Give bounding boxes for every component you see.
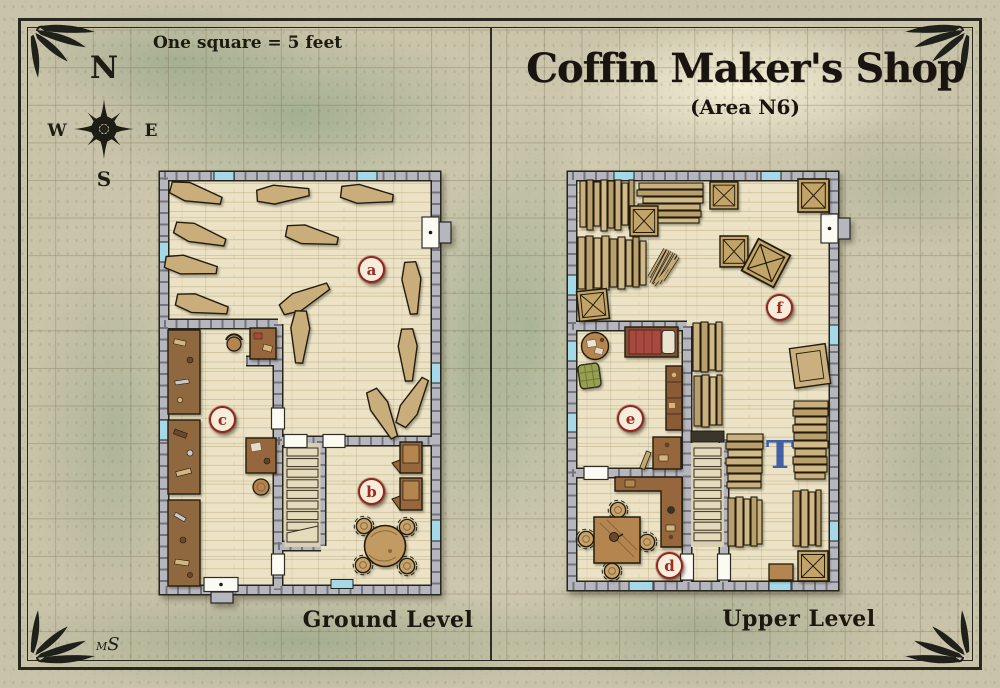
room-label-d: d (656, 552, 683, 579)
shelf-cabinet-icon (666, 366, 682, 430)
door (272, 554, 285, 575)
corner-flourish-icon (22, 594, 108, 666)
ground-level-caption: Ground Level (273, 607, 503, 633)
door (323, 435, 345, 448)
door-nub (211, 592, 233, 603)
door (718, 554, 731, 580)
compass-south-label: S (97, 167, 111, 191)
window (357, 172, 377, 181)
title-block: Coffin Maker's Shop (Area N6) (505, 48, 985, 119)
window (331, 580, 353, 589)
door (584, 467, 608, 480)
paper-icon (250, 442, 261, 452)
crate-icon (798, 551, 828, 581)
door-handle (429, 231, 433, 235)
artist-signature: MS (96, 634, 120, 655)
flat-crate-icon (789, 344, 830, 389)
page-subtitle: (Area N6) (505, 95, 985, 119)
door-handle (219, 583, 223, 587)
door-nub (439, 222, 451, 243)
bed-icon (625, 327, 678, 357)
window (830, 325, 839, 345)
workbench-icon (168, 420, 200, 494)
stairs-icon (285, 443, 321, 547)
door-nub (838, 218, 850, 239)
square-table-icon (594, 517, 640, 563)
upper-level-caption: Upper Level (684, 606, 914, 632)
window (614, 172, 634, 181)
room-label-b: b (358, 478, 385, 505)
crate-icon (720, 236, 748, 267)
plank-stack-icon (728, 497, 762, 547)
window (160, 420, 169, 440)
compass-star (74, 99, 134, 159)
page-title: Coffin Maker's Shop (505, 48, 985, 90)
stool-icon (253, 479, 269, 495)
plank-stack-icon (793, 490, 821, 547)
window (214, 172, 234, 181)
round-table-icon (582, 333, 609, 360)
timber-annotation: T (758, 432, 802, 477)
upper-level-floorplan (555, 165, 855, 605)
crate-icon (577, 289, 610, 322)
room-label-f: f (766, 294, 793, 321)
door-handle (828, 227, 832, 231)
plank-stack-icon (693, 322, 722, 372)
room-label-e: e (617, 405, 644, 432)
window (769, 582, 791, 591)
compass-north-label: N (90, 50, 118, 86)
map-canvas: One square = 5 feet Coffin Maker's Shop … (0, 0, 1000, 688)
panel-divider (490, 28, 492, 661)
desk-icon (246, 438, 276, 473)
stairs-icon (691, 431, 724, 547)
window (568, 413, 577, 432)
door (272, 408, 285, 429)
window (761, 172, 781, 181)
window (432, 520, 441, 541)
compass-east-label: E (145, 121, 158, 141)
stool-icon (227, 337, 241, 351)
window (629, 582, 653, 591)
room-label-c: c (209, 406, 236, 433)
armchair-icon (577, 363, 601, 390)
scale-note: One square = 5 feet (153, 33, 342, 53)
crate-icon (710, 182, 738, 209)
round-table-icon (365, 526, 406, 567)
window (432, 363, 441, 383)
ground-level-floorplan (150, 165, 460, 615)
desk-icon (250, 328, 276, 359)
compass-west-label: W (46, 121, 67, 141)
crate-icon (630, 206, 658, 236)
box-icon (769, 564, 793, 580)
room-label-a: a (358, 256, 385, 283)
window (568, 341, 577, 361)
window (568, 275, 577, 295)
door (284, 435, 307, 448)
plank-stack-icon (578, 236, 646, 291)
crate-icon (798, 179, 829, 212)
compass-rose-icon: N W E S (44, 50, 164, 192)
plank-stack-icon (580, 180, 634, 231)
window (830, 521, 839, 541)
plank-stack-icon (694, 375, 722, 427)
